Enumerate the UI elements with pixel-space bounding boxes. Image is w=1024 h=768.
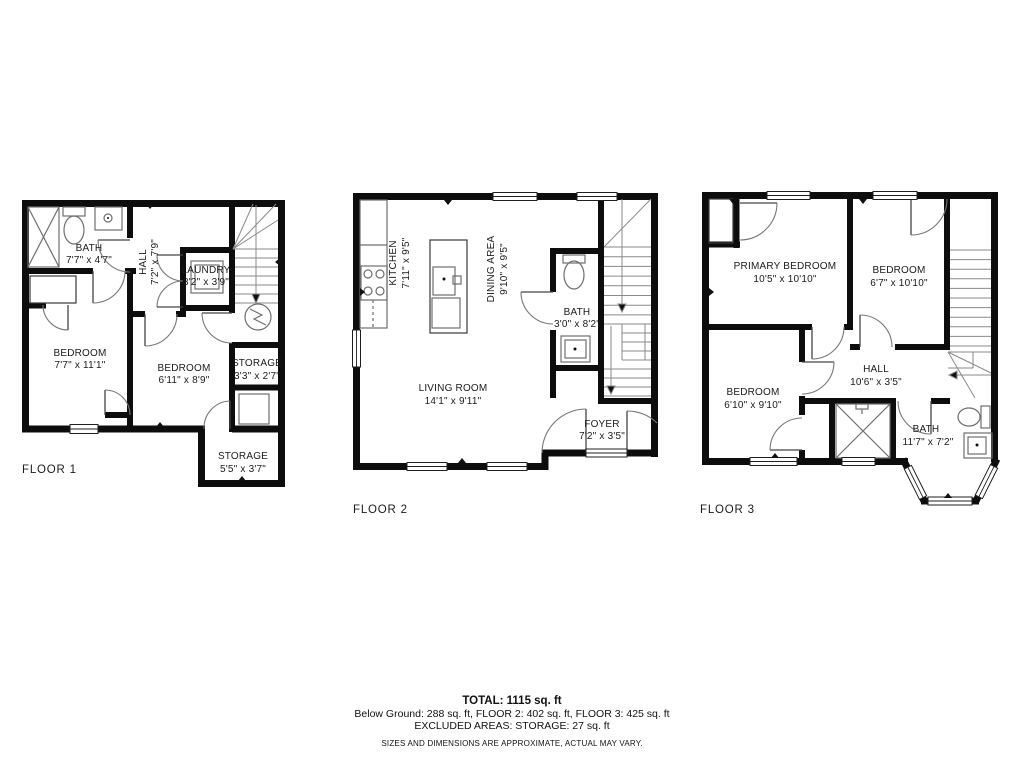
kitchen-island	[430, 240, 467, 333]
toilet-icon	[958, 406, 990, 428]
floorplan-drawing: BATH 7'7" x 4'7" HALL 7'2" x 7'9" LAUNDR…	[0, 0, 1024, 768]
shower-icon	[28, 207, 59, 267]
room-dims: 3'0" x 8'2"	[554, 319, 600, 330]
room-label: STORAGE	[218, 451, 268, 462]
room-label: KITCHEN	[388, 240, 399, 285]
room-label: BEDROOM	[53, 348, 106, 359]
wall-tick	[944, 493, 952, 498]
room-dims: 10'5" x 10'10"	[753, 274, 816, 285]
room-label: BATH	[76, 243, 103, 254]
room-label: HALL	[863, 364, 889, 375]
room-label: FOYER	[584, 419, 619, 430]
room-dims: 14'1" x 9'11"	[425, 396, 482, 407]
stove-icon	[361, 266, 387, 300]
room-dims: 3'2" x 3'9"	[183, 277, 229, 288]
electrical-panel-icon	[245, 304, 271, 330]
floor1-label: FLOOR 1	[22, 464, 77, 476]
sink-icon	[964, 433, 992, 458]
window	[70, 425, 98, 434]
room-dims: 7'7" x 11'1"	[55, 360, 106, 371]
wall-tick	[709, 288, 714, 296]
room-dims: 7'2" x 3'5"	[579, 431, 625, 442]
room-label: PRIMARY BEDROOM	[734, 261, 837, 272]
floor2-interior-walls	[550, 193, 658, 404]
toilet-icon	[63, 207, 85, 244]
floor2-label: FLOOR 2	[353, 504, 408, 516]
room-dims: 11'7" x 7'2"	[903, 437, 954, 448]
wall-tick	[238, 476, 246, 481]
floor1-plan: BATH 7'7" x 4'7" HALL 7'2" x 7'9" LAUNDR…	[22, 200, 285, 487]
sink-icon	[95, 207, 122, 230]
room-label: BEDROOM	[157, 363, 210, 374]
room-label: LIVING ROOM	[419, 383, 488, 394]
room-label: BEDROOM	[726, 387, 779, 398]
summary-breakdown: Below Ground: 288 sq. ft, FLOOR 2: 402 s…	[0, 708, 1024, 720]
stairs-floor3	[948, 250, 991, 398]
wall-tick	[458, 458, 466, 463]
room-label: HALL	[138, 249, 149, 275]
floor3-label: FLOOR 3	[700, 504, 755, 516]
summary-block: TOTAL: 1115 sq. ft Below Ground: 288 sq.…	[0, 695, 1024, 748]
stairs-floor1	[233, 204, 278, 303]
room-label: BATH	[564, 307, 591, 318]
room-dims: 10'6" x 3'5"	[850, 377, 902, 388]
wall-tick	[859, 199, 867, 204]
wall-tick	[156, 422, 164, 427]
room-dims: 3'3" x 2'7"	[234, 371, 280, 382]
shower-icon	[836, 404, 890, 458]
summary-total: TOTAL: 1115 sq. ft	[0, 695, 1024, 708]
room-dims: 6'7" x 10'10"	[870, 278, 928, 289]
room-label: BATH	[913, 424, 940, 435]
closet-box	[709, 199, 733, 243]
room-label: DINING AREA	[486, 236, 497, 303]
summary-disclaimer: SIZES AND DIMENSIONS ARE APPROXIMATE, AC…	[0, 739, 1024, 748]
room-dims: 6'11" x 8'9"	[159, 375, 210, 386]
room-label: LAUNDRY	[181, 265, 230, 276]
floorplan-page: BATH 7'7" x 4'7" HALL 7'2" x 7'9" LAUNDR…	[0, 0, 1024, 768]
room-dims: 7'2" x 7'9"	[150, 239, 161, 285]
kitchen-counter	[360, 200, 387, 328]
room-label: STORAGE	[232, 358, 282, 369]
summary-excluded: EXCLUDED AREAS: STORAGE: 27 sq. ft	[0, 720, 1024, 732]
floor3-plan: PRIMARY BEDROOM 10'5" x 10'10" BEDROOM 6…	[700, 192, 998, 517]
toilet-icon	[563, 255, 585, 289]
floor3-interior-walls	[702, 192, 950, 461]
room-dims: 9'10" x 9'5"	[499, 243, 510, 295]
floor2-plan: KITCHEN 7'11" x 9'5" DINING AREA 9'10" x…	[353, 193, 659, 517]
window	[750, 192, 998, 506]
sink-icon	[561, 336, 590, 362]
room-dims: 5'5" x 3'7"	[220, 464, 266, 475]
room-dims: 7'11" x 9'5"	[401, 237, 412, 288]
closet-box	[30, 276, 76, 303]
wall-tick	[275, 258, 280, 266]
room-label: BEDROOM	[872, 265, 925, 276]
wall-tick	[771, 453, 779, 458]
room-dims: 6'10" x 9'10"	[724, 400, 782, 411]
utility-box-icon	[239, 394, 269, 424]
stairs-floor2	[604, 199, 651, 396]
room-dims: 7'7" x 4'7"	[66, 255, 112, 266]
wall-tick	[444, 200, 452, 205]
